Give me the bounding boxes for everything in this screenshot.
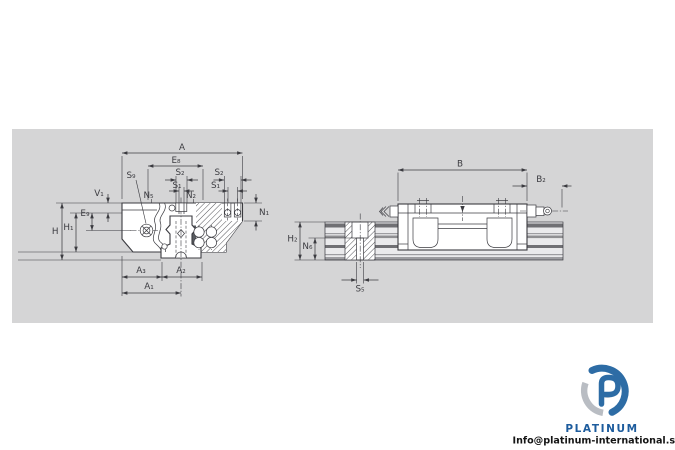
brand-block: PLATINUM Info@platinum-international.sto…: [513, 368, 675, 446]
rail-mounting-hole-section: [345, 214, 375, 269]
dim-label-e9: E₉: [80, 209, 90, 219]
dim-label-n1: N₁: [259, 208, 270, 218]
dim-label-e8: E₈: [171, 156, 181, 166]
dim-label-v1: V₁: [94, 189, 104, 199]
platinum-logo-icon: [584, 368, 625, 413]
dim-label-s2-left: S₂: [175, 168, 184, 178]
dim-label-a: A: [179, 143, 185, 153]
brand-name: PLATINUM: [565, 423, 638, 435]
dim-label-a1: A₁: [144, 282, 154, 292]
technical-drawing: A E₈ S₂ S₁ S₂: [0, 0, 675, 450]
dim-label-s5: S₅: [355, 285, 365, 295]
dim-label-a2: A₂: [176, 266, 186, 276]
dim-label-n6: N₆: [302, 242, 313, 252]
dim-label-n2: N₂: [186, 191, 196, 201]
dim-label-h1: H₁: [63, 223, 74, 233]
carriage-side: [398, 196, 527, 250]
dim-label-s1-right: S₁: [211, 181, 221, 191]
dim-label-s2-right: S₂: [214, 168, 223, 178]
dim-label-s9: S₉: [126, 171, 136, 181]
dim-label-b2: B₂: [536, 175, 546, 185]
dim-label-h: H: [52, 227, 59, 237]
dim-label-a3: A₃: [136, 266, 146, 276]
brand-email: Info@platinum-international.store: [513, 436, 675, 447]
dim-label-s1-left: S₁: [172, 181, 182, 191]
dim-label-n5: N₅: [143, 191, 154, 201]
product-drawing-page: A E₈ S₂ S₁ S₂: [0, 0, 675, 450]
dim-label-h2: H₂: [287, 235, 297, 245]
dim-label-b: B: [457, 160, 463, 170]
